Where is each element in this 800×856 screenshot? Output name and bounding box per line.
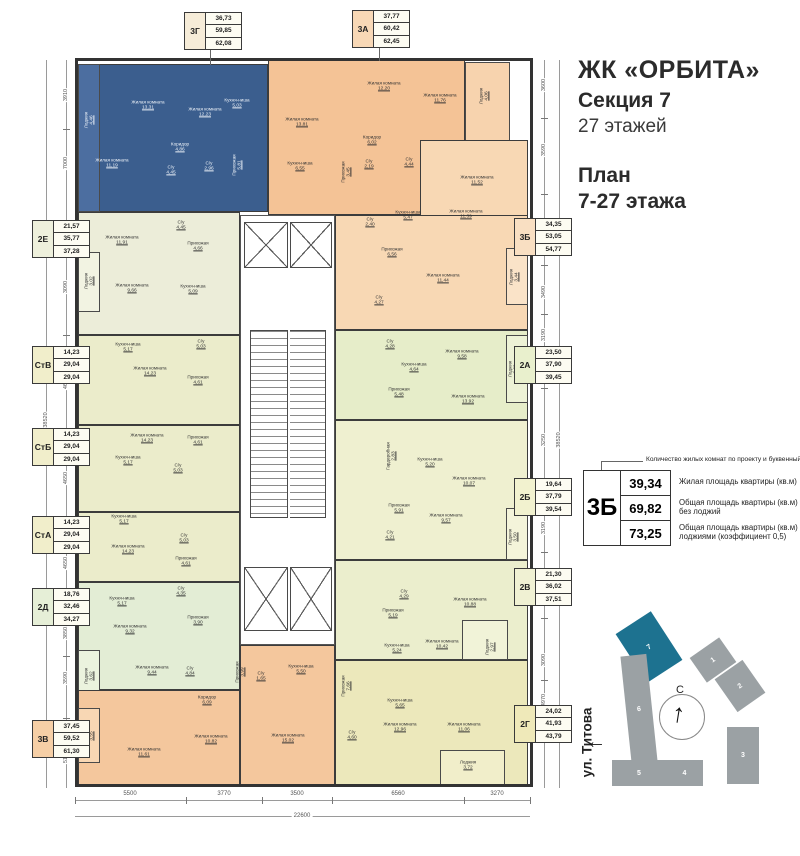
legend-connector-v (601, 461, 602, 470)
dimension-label: 3590 (541, 143, 547, 157)
legend-total-loggia-area: 73,25 (621, 521, 670, 545)
room-label: С/у4,44 (404, 156, 413, 167)
apartment-area-value: 37,28 (54, 246, 89, 257)
apartment-label-box: 3Б34,3553,0554,77 (514, 218, 572, 256)
dimension-tick (332, 797, 333, 804)
dimension-label: 3190 (541, 328, 547, 342)
room-label: Прихожая5,19 (382, 607, 403, 618)
legend-total-loggia-label: Общая площадь квартиры (кв.м) с лоджиями… (679, 521, 800, 546)
apartment-area-value: 36,02 (536, 581, 571, 593)
room-label: Кухня-ниша5,09 (180, 283, 205, 294)
room-label: Жилая комната12,96 (383, 721, 416, 732)
room-label: Жилая комната13,31 (131, 99, 164, 110)
dimension-total: 38520 (43, 411, 49, 428)
apartment-2e-area (78, 212, 240, 335)
legend-total-label: Общая площадь квартиры (кв.м) без лоджий (679, 495, 800, 520)
apartment-area-value: 34,27 (54, 614, 89, 625)
apartment-area-value: 19,64 (536, 479, 571, 491)
room-label: Жилая комната10,88 (453, 596, 486, 607)
apartment-label-box: СтА14,2329,0429,04 (32, 516, 90, 554)
apartment-area-value: 54,77 (536, 244, 571, 255)
dimension-tick (63, 335, 70, 336)
apartment-code: 3Г (185, 13, 206, 49)
street-direction-arrow-icon: ← (586, 731, 606, 754)
room-label: Жилая комната9,32 (113, 623, 146, 634)
room-label: Кухня-ниша5,50 (288, 663, 313, 674)
apartment-area-value: 43,79 (536, 731, 571, 742)
dimension-tick (186, 797, 187, 804)
room-label: С/у4,29 (399, 588, 408, 599)
room-label: С/у1,65 (256, 670, 265, 681)
dimension-tick (63, 129, 70, 130)
dimension-tick (63, 656, 70, 657)
apartment-area-value: 14,23 (54, 347, 89, 359)
room-label: Жилая комната12,23 (188, 106, 221, 117)
dimension-label: 3270 (488, 791, 505, 797)
site-building-5: 5 (612, 760, 666, 786)
apartment-area-value: 59,85 (206, 25, 241, 37)
room-label: С/у5,03 (179, 532, 188, 543)
dimension-label: 3850 (63, 626, 69, 640)
apartment-area-value: 62,08 (206, 38, 241, 49)
apartment-area-value: 29,04 (54, 441, 89, 453)
apartment-area-value: 34,35 (536, 219, 571, 231)
dimension-label: 3590 (63, 671, 69, 685)
apartment-area-value: 36,73 (206, 13, 241, 25)
room-label: С/у4,45 (166, 164, 175, 175)
apartment-area-value: 29,04 (54, 372, 89, 383)
room-label: С/у4,84 (185, 665, 194, 676)
elevator-shaft (290, 222, 332, 268)
apartment-area-value: 59,52 (54, 733, 89, 745)
room-label: Коридор6,02 (363, 134, 381, 145)
apartment-area-value: 35,77 (54, 233, 89, 245)
room-label: Жилая комната9,58 (445, 348, 478, 359)
room-label: Кухня-ниша6,55 (287, 160, 312, 171)
north-label: С (676, 684, 684, 696)
room-label: С/у4,21 (385, 529, 394, 540)
apartment-area-value: 32,46 (54, 601, 89, 613)
legend-code: 3Б (583, 470, 621, 546)
apartment-area-value: 23,50 (536, 347, 571, 359)
apartment-area-value: 18,76 (54, 589, 89, 601)
apartment-area-value: 37,77 (374, 11, 409, 23)
dimension-tick (541, 118, 548, 119)
legend-living-label: Жилая площадь квартиры (кв.м) (679, 470, 800, 495)
room-label: С/у2,19 (364, 158, 373, 169)
floors-count: 27 этажей (578, 116, 760, 138)
apartment-area-value: 29,04 (54, 542, 89, 553)
apartment-area-value: 37,79 (536, 491, 571, 503)
room-label: Жилая комната13,81 (285, 116, 318, 127)
apartment-2a-area (335, 330, 528, 420)
room-label: Кухня-ниша5,03 (224, 97, 249, 108)
apartment-label-box: 2Е21,5735,7737,28 (32, 220, 90, 258)
room-label: Кухня-ниша5,17 (109, 595, 134, 606)
apartment-area-value: 21,57 (54, 221, 89, 233)
legend-total-area: 69,82 (621, 496, 670, 521)
room-label: Прихожая5,48 (388, 386, 409, 397)
room-label: Прихожая4,61 (187, 434, 208, 445)
room-label: Жилая комната10,07 (452, 475, 485, 486)
apartment-area-value: 29,04 (54, 454, 89, 465)
dimension-label: 3500 (288, 791, 305, 797)
room-label: Жилая комната14,23 (133, 365, 166, 376)
room-label: Кухня-ниша5,17 (111, 513, 136, 524)
dimension-label: 3190 (541, 521, 547, 535)
dimension-label: 3090 (541, 653, 547, 667)
dimension-label: 3770 (215, 791, 232, 797)
dimension-label: 3490 (541, 285, 547, 299)
site-building-4: 4 (666, 760, 703, 786)
room-label: Лоджия4,46 (83, 112, 94, 128)
dimension-tick (541, 388, 548, 389)
dimension-tick (541, 552, 548, 553)
apartment-2b-area (335, 420, 528, 560)
elevator-shaft (244, 567, 288, 631)
apartment-area-value: 53,05 (536, 231, 571, 243)
room-label: Кухня-ниша4,64 (401, 361, 426, 372)
plan-title-line2: 7-27 этажа (578, 190, 760, 214)
dim-line-bottom (75, 800, 530, 801)
apartment-label-box: 2А23,5037,9039,45 (514, 346, 572, 384)
apartment-area-value: 39,45 (536, 372, 571, 383)
room-label: Кухня-ниша5,20 (417, 456, 442, 467)
apartment-code: 2Д (33, 589, 54, 625)
room-label: Жилая комната11,76 (423, 92, 456, 103)
apartment-label-box: 2В21,3036,0237,51 (514, 568, 572, 606)
title-block: ЖК «ОРБИТА» Секция 7 27 этажей План 7-27… (578, 56, 760, 214)
room-label: С/у4,45 (176, 219, 185, 230)
apartment-area-value: 37,90 (536, 359, 571, 371)
room-label: Жилая комната12,20 (367, 80, 400, 91)
dimension-label: 5500 (121, 791, 138, 797)
apartment-area-value: 21,30 (536, 569, 571, 581)
dimension-label: 4650 (63, 471, 69, 485)
floor-plan-page: { "header": { "complex": "ЖК «ОРБИТА»", … (0, 0, 800, 856)
dimension-label: 3910 (63, 88, 69, 102)
dimension-tick (262, 797, 263, 804)
dimension-tick (541, 618, 548, 619)
apartment-code: 2Е (33, 221, 54, 257)
legend: 3Б 39,34 69,82 73,25 Жилая площадь кварт… (583, 470, 800, 546)
dimension-total: 38520 (556, 431, 562, 448)
room-label: Жилая комната15,02 (271, 732, 304, 743)
apartment-3g-area (78, 64, 268, 212)
apartment-area-value: 41,93 (536, 718, 571, 730)
elevator-shaft (290, 567, 332, 631)
legend-labels: Жилая площадь квартиры (кв.м) Общая площ… (671, 470, 800, 546)
apartment-code: СтА (33, 517, 54, 553)
room-label: Лоджия3,02 (83, 273, 94, 289)
room-label: Жилая комната11,52 (460, 174, 493, 185)
room-label: Прихожая7,66 (340, 675, 351, 696)
apartment-area-value: 62,45 (374, 36, 409, 47)
room-label: Прихожая3,99 (234, 661, 245, 682)
room-label: Кухня-ниша5,65 (387, 697, 412, 708)
apartment-sta-area (78, 512, 240, 582)
apartment-code: 2А (515, 347, 536, 383)
apartment-area-value: 29,04 (54, 359, 89, 371)
room-label: Жилая комната14,23 (130, 432, 163, 443)
apartment-label-box: 3А37,7760,4262,45 (352, 10, 410, 48)
room-label: С/у4,35 (176, 585, 185, 596)
room-label: Прихожая5,91 (388, 502, 409, 513)
apartment-code: 2Б (515, 479, 536, 515)
dimension-label: 7000 (63, 156, 69, 170)
dimension-tick (63, 718, 70, 719)
room-label: Гардеробная2,83 (385, 442, 396, 470)
legend-note: Количество жилых комнат по проекту и бук… (646, 456, 800, 463)
stairwell-divider (287, 330, 290, 518)
room-label: Жилая комната13,92 (451, 393, 484, 404)
room-label: Прихожая5,81 (231, 154, 242, 175)
dimension-tick (541, 265, 548, 266)
room-label: С/у2,96 (204, 160, 213, 171)
leader-line (210, 48, 211, 65)
room-label: Лоджия3,50 (507, 529, 518, 545)
apartment-area-value: 39,54 (536, 504, 571, 515)
room-label: Лоджия3,44 (508, 269, 519, 285)
room-label: Жилая комната9,57 (429, 512, 462, 523)
apartment-code: СтБ (33, 429, 54, 465)
apartment-area-value: 14,23 (54, 429, 89, 441)
room-label: С/у2,40 (365, 216, 374, 227)
apartment-area-value: 37,51 (536, 594, 571, 605)
dimension-tick (464, 797, 465, 804)
room-label: Жилая комната11,19 (95, 157, 128, 168)
dimension-tick (541, 314, 548, 315)
apartment-code: 3Б (515, 219, 536, 255)
apartment-area-value: 24,02 (536, 706, 571, 718)
room-label: Жилая комната11,06 (447, 721, 480, 732)
dimension-tick (75, 797, 76, 804)
plan-title-line1: План (578, 164, 760, 188)
room-label: Прихожая4,61 (187, 374, 208, 385)
room-label: Прихожая3,45 (340, 161, 351, 182)
apartment-area-value: 14,23 (54, 517, 89, 529)
room-label: Жилая комната9,44 (135, 664, 168, 675)
apartment-label-box: СтВ14,2329,0429,04 (32, 346, 90, 384)
elevator-shaft (244, 222, 288, 268)
dimension-tick (541, 680, 548, 681)
room-label: С/у5,03 (196, 338, 205, 349)
apartment-code: СтВ (33, 347, 54, 383)
apartment-code: 2Г (515, 706, 536, 742)
dimension-tick (541, 194, 548, 195)
room-label: Кухня-ниша5,47 (395, 209, 420, 220)
room-label: Жилая комната9,66 (115, 282, 148, 293)
dimension-label: 3250 (541, 433, 547, 447)
room-label: С/у4,28 (385, 338, 394, 349)
apartment-area-value: 60,42 (374, 23, 409, 35)
apartment-code: 3В (33, 721, 54, 757)
room-label: С/у5,03 (173, 462, 182, 473)
legend-connector-h (601, 461, 643, 462)
apartment-label-box: 3В37,4559,5261,30 (32, 720, 90, 758)
dimension-label: 6560 (389, 791, 406, 797)
apartment-area-value: 37,45 (54, 721, 89, 733)
leader-line (379, 46, 380, 61)
room-label: Кухня-ниша5,17 (115, 341, 140, 352)
dimension-tick (530, 797, 531, 804)
room-label: Прихожая6,56 (381, 246, 402, 257)
dim-line-right-outer (559, 60, 560, 788)
dimension-total: 22600 (292, 813, 313, 819)
apartment-code: 3А (353, 11, 374, 47)
room-label: Жилая комната11,61 (127, 746, 160, 757)
room-label: Жилая комната10,82 (194, 733, 227, 744)
apartment-area-value: 29,04 (54, 529, 89, 541)
room-label: Лоджия3,62 (83, 668, 94, 684)
legend-living-area: 39,34 (621, 471, 670, 496)
complex-name: ЖК «ОРБИТА» (578, 56, 760, 85)
apartment-area-value: 61,30 (54, 746, 89, 757)
room-label: Кухня-ниша5,24 (384, 642, 409, 653)
room-label: Лоджия2,97 (484, 639, 495, 655)
room-label: Прихожая3,90 (187, 614, 208, 625)
dimension-label: 4650 (63, 556, 69, 570)
room-label: Жилая комната10,42 (425, 638, 458, 649)
apartment-label-box: 2Д18,7632,4634,27 (32, 588, 90, 626)
room-label: Лоджия4,06 (478, 88, 489, 104)
legend-values: 39,34 69,82 73,25 (621, 470, 671, 546)
room-label: Прихожая4,66 (187, 240, 208, 251)
apartment-label-box: СтБ14,2329,0429,04 (32, 428, 90, 466)
room-label: Жилая комната14,23 (111, 543, 144, 554)
room-label: Жилая комната11,39 (449, 208, 482, 219)
apartment-label-box: 3Г36,7359,8562,08 (184, 12, 242, 50)
room-label: Прихожая4,61 (175, 555, 196, 566)
site-building-3: 3 (727, 727, 759, 784)
room-label: Коридор4,86 (171, 141, 189, 152)
room-label: С/у4,27 (374, 294, 383, 305)
section-name: Секция 7 (578, 89, 760, 113)
apartment-code: 2В (515, 569, 536, 605)
apartment-label-box: 2Б19,6437,7939,54 (514, 478, 572, 516)
room-label: Лоджия3,72 (460, 759, 476, 770)
room-label: С/у4,60 (347, 729, 356, 740)
room-label: Жилая комната11,44 (426, 272, 459, 283)
dim-line-right (544, 60, 545, 788)
room-label: Жилая комната11,91 (105, 234, 138, 245)
apartment-stv-area (78, 335, 240, 425)
room-label: Коридор6,09 (198, 694, 216, 705)
apartment-label-box: 2Г24,0241,9343,79 (514, 705, 572, 743)
apartment-3g-loggia (78, 64, 100, 212)
dimension-label: 3090 (63, 280, 69, 294)
dimension-label: 3600 (541, 78, 547, 92)
room-label: Кухня-ниша5,17 (115, 454, 140, 465)
